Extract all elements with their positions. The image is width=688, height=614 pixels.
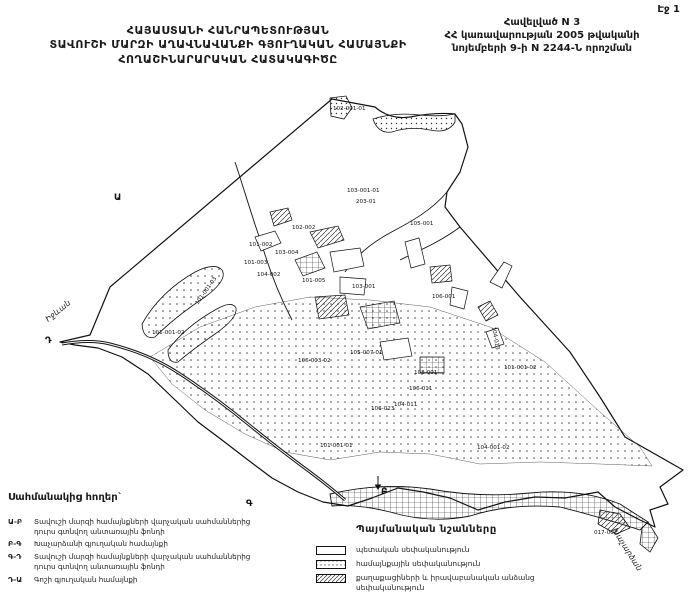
- adjacent-land-item: Բ-Գ Խաչարձանի գյուղական համայնքի: [8, 539, 318, 549]
- map-title: ՀԱՅԱՍՏԱՆԻ ՀԱՆՐԱՊԵՏՈՒԹՅԱՆ ՏԱՎՈՒՇԻ ՄԱՐԶԻ Ա…: [28, 24, 428, 67]
- adjacent-land-text: Տավուշի մարզի համայնքների վարչական սահմա…: [34, 552, 264, 571]
- parcel-label: 102-001-01: [333, 106, 366, 112]
- boundary-corner-letter: Ա: [114, 193, 121, 203]
- adjacent-land-code: Դ-Ա: [8, 575, 28, 585]
- parcel-label: 101-005: [302, 278, 326, 284]
- parcel-label: 102-002: [292, 225, 315, 231]
- parcel-label: 104-011: [394, 402, 418, 408]
- parcel-label: 103-001-01: [347, 188, 380, 194]
- parcel-label: 203-01: [356, 199, 376, 205]
- appendix-line-1: Հավելված N 3: [408, 16, 676, 29]
- legend-item: համայնքային սեփականություն: [316, 559, 616, 569]
- title-line-1: ՀԱՅԱՍՏԱՆԻ ՀԱՆՐԱՊԵՏՈՒԹՅԱՆ: [28, 24, 428, 38]
- adjacent-lands-heading: Սահմանակից հողեր`: [8, 492, 318, 503]
- parcel-label: 101-002: [249, 242, 272, 248]
- parcel-label: 104-001-02: [477, 445, 510, 451]
- legend-item: քաղաքացիների և իրավաբանական անձանց սեփակ…: [316, 573, 616, 593]
- parcel-label: 101-003: [244, 260, 268, 266]
- parcel-label: 105-001: [410, 221, 434, 227]
- legend-item-label: քաղաքացիների և իրավաբանական անձանց սեփակ…: [356, 573, 556, 593]
- adjacent-lands-legend: Սահմանակից հողեր` Ա-Բ Տավուշի մարզի համա…: [8, 492, 318, 587]
- adjacent-land-item: Դ-Ա Գոշի գյուղական համայնքի: [8, 575, 318, 585]
- adjacent-land-code: Գ-Դ: [8, 552, 28, 571]
- parcel-label: 101-001-01: [320, 443, 353, 449]
- adjacent-land-item: Ա-Բ Տավուշի մարզի համայնքների վարչական ս…: [8, 517, 318, 536]
- legend-item-label: համայնքային սեփականություն: [356, 559, 480, 569]
- adjacent-land-code: Բ-Գ: [8, 539, 28, 549]
- parcel-label: 106-001: [432, 294, 456, 300]
- parcel-label: 105-007-01: [350, 350, 383, 356]
- direction-label: Իջևան: [44, 298, 73, 323]
- legend-heading: Պայմանական նշանները: [356, 524, 616, 535]
- legend-item: պետական սեփականություն: [316, 545, 616, 555]
- title-line-2: ՏԱՎՈՒՇԻ ՄԱՐԶԻ ԱՂԱՎՆԱՎԱՆՔԻ ԳՅՈՒՂԱԿԱՆ ՀԱՄԱ…: [28, 38, 428, 52]
- adjacent-land-code: Ա-Բ: [8, 517, 28, 536]
- parcel-label: 106-003-02: [298, 358, 331, 364]
- appendix-line-2: ՀՀ կառավարության 2005 թվականի: [408, 29, 676, 42]
- parcel-label: 103-004: [275, 250, 299, 256]
- adjacent-land-text: Խաչարձանի գյուղական համայնքի: [34, 539, 168, 549]
- ownership-community-swatch: [316, 560, 346, 569]
- ownership-state-swatch: [316, 546, 346, 555]
- adjacent-land-text: Տավուշի մարզի համայնքների վարչական սահմա…: [34, 517, 264, 536]
- appendix-reference: Հավելված N 3 ՀՀ կառավարության 2005 թվակա…: [408, 16, 676, 55]
- parcel-label: 103-001: [352, 284, 376, 290]
- parcel-label: 101-001-02: [152, 330, 185, 336]
- parcel-label: 104-002: [257, 272, 280, 278]
- parcel-label: 101-001-02: [504, 365, 537, 371]
- ownership-private-swatch: [316, 574, 346, 583]
- parcel-label: 106-011: [409, 386, 433, 392]
- adjacent-land-text: Գոշի գյուղական համայնքի: [34, 575, 137, 585]
- appendix-line-3: նոյեմբերի 9-ի N 2244-Ն որոշման: [408, 42, 676, 55]
- conventional-signs-legend: Պայմանական նշանները պետական սեփականությո…: [316, 524, 616, 597]
- adjacent-land-item: Գ-Դ Տավուշի մարզի համայնքների վարչական ս…: [8, 552, 318, 571]
- legend-item-label: պետական սեփականություն: [356, 545, 469, 555]
- page-number: Էջ 1: [657, 4, 680, 15]
- boundary-corner-letter: Դ: [45, 336, 52, 346]
- parcel-label: 108-001: [414, 370, 438, 376]
- title-line-3: ՀՈՂԱՇԻՆԱՐԱՐԱԿԱՆ ՀԱՏԱԿԱԳԻԾԸ: [28, 53, 428, 67]
- boundary-corner-letter: Բ: [381, 487, 388, 497]
- parcel-label: 106-023: [371, 406, 395, 412]
